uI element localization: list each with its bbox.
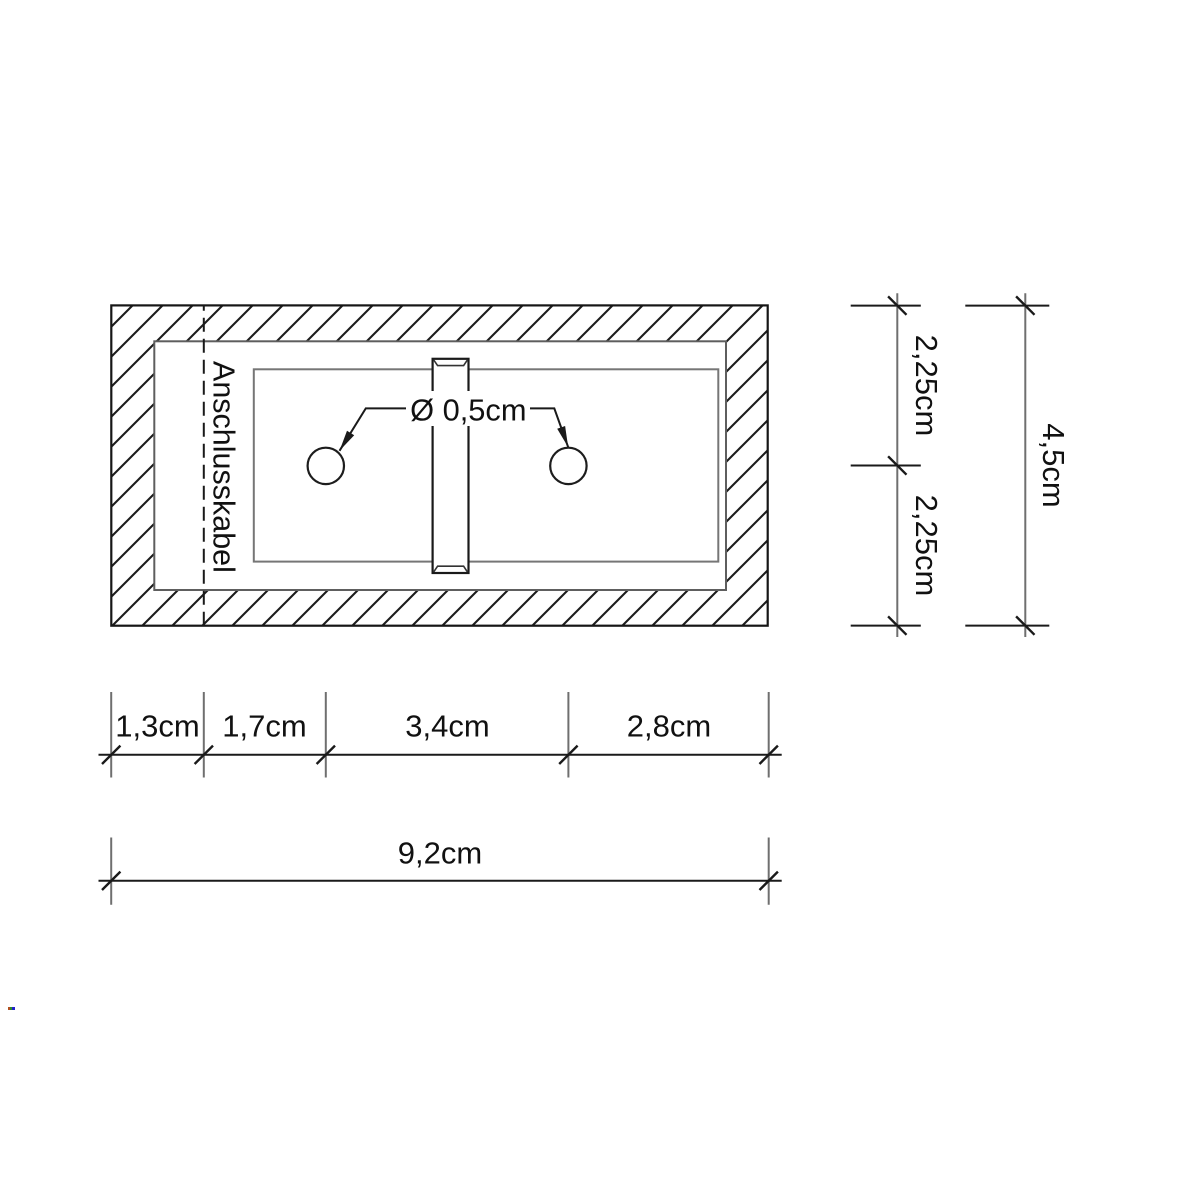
svg-text:1,3cm: 1,3cm xyxy=(115,709,199,744)
svg-text:1,7cm: 1,7cm xyxy=(222,709,306,744)
svg-text:Ø 0,5cm: Ø 0,5cm xyxy=(410,393,526,428)
svg-text:2,8cm: 2,8cm xyxy=(627,709,711,744)
svg-text:Anschlusskabel: Anschlusskabel xyxy=(207,361,241,573)
svg-text:2,25cm: 2,25cm xyxy=(909,335,944,437)
svg-text:4,5cm: 4,5cm xyxy=(1036,423,1071,507)
svg-text:2,25cm: 2,25cm xyxy=(909,495,944,597)
svg-text:3,4cm: 3,4cm xyxy=(405,709,489,744)
svg-text:9,2cm: 9,2cm xyxy=(398,836,482,871)
